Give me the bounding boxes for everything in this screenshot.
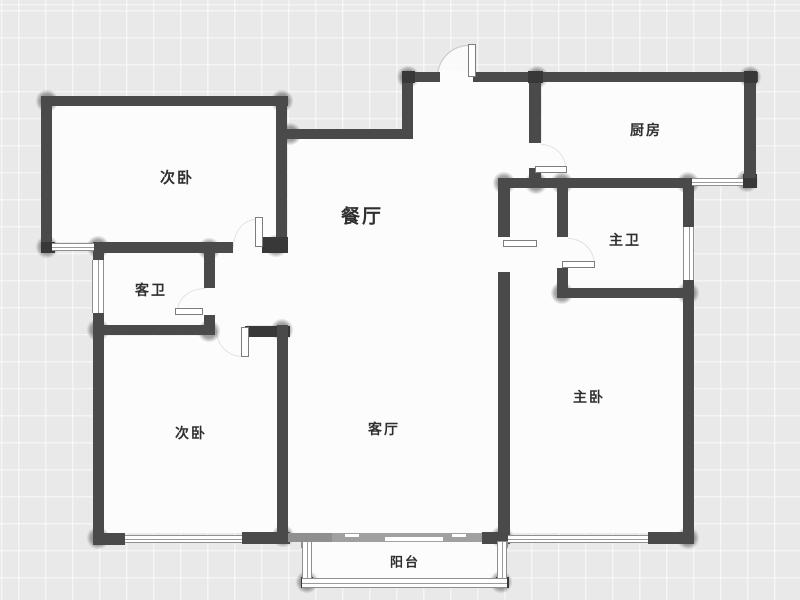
wall-segment — [498, 178, 510, 237]
wall-segment — [498, 272, 510, 533]
wall-segment — [276, 96, 287, 252]
guest-bath-door-leaf — [175, 308, 203, 315]
sliding-door-panel-gap — [385, 537, 443, 541]
wall-segment — [285, 129, 413, 139]
floor-area — [215, 253, 288, 325]
window-center-line — [98, 260, 99, 313]
floor-area — [413, 82, 530, 178]
wall-segment — [528, 71, 543, 83]
window-center-line — [307, 542, 308, 578]
entry-door-leaf — [468, 44, 476, 77]
wall-segment — [41, 96, 52, 253]
window-marker — [692, 178, 743, 186]
window-marker — [125, 535, 242, 543]
entry-door-arc — [437, 45, 469, 77]
window-marker — [683, 227, 694, 280]
sliding-door-panel-gap — [452, 534, 466, 537]
wall-segment — [262, 237, 288, 253]
room-label-guest-bath: 客卫 — [135, 280, 167, 300]
wall-segment — [529, 78, 541, 143]
floor-area — [510, 298, 683, 533]
wall-segment — [204, 245, 215, 288]
window-center-line — [689, 227, 690, 280]
room-label-master-bath: 主卫 — [609, 230, 641, 250]
wall-segment — [744, 71, 757, 83]
wall-segment — [41, 96, 288, 106]
wall-segment — [557, 288, 694, 298]
wall-segment — [473, 72, 758, 82]
sliding-door-panel-gap — [345, 534, 359, 537]
window-marker — [497, 542, 507, 578]
room-label-bedroom-bottom: 次卧 — [175, 423, 207, 443]
window-marker — [508, 535, 648, 543]
room-label-balcony: 阳台 — [390, 552, 420, 571]
window-center-line — [52, 247, 94, 248]
room-label-master-bedroom: 主卧 — [573, 387, 605, 407]
wall-segment — [93, 325, 215, 335]
wall-segment — [277, 325, 288, 539]
window-marker — [92, 260, 104, 313]
window-center-line — [302, 583, 507, 584]
bedroom-bottom-door-leaf — [241, 327, 249, 357]
window-center-line — [125, 539, 242, 540]
floor-plan-canvas: 次卧餐厅厨房主卫客卫次卧客厅主卧阳台 — [0, 0, 800, 600]
window-marker — [302, 542, 312, 578]
master-bath-door-leaf — [562, 261, 595, 268]
floor-area — [288, 139, 498, 533]
floor-area — [204, 286, 215, 316]
dining-pocket-door-leaf — [503, 240, 537, 247]
room-label-living: 客厅 — [368, 419, 400, 439]
window-marker — [52, 243, 94, 251]
window-center-line — [692, 182, 743, 183]
wall-segment — [93, 533, 125, 545]
wall-segment — [204, 315, 215, 329]
wall-segment — [402, 71, 415, 83]
kitchen-door-leaf — [535, 166, 567, 173]
room-label-dining: 餐厅 — [341, 202, 383, 229]
wall-segment — [93, 313, 104, 545]
bedroom-top-door-leaf — [255, 217, 263, 247]
wall-segment — [683, 280, 694, 544]
wall-segment — [288, 533, 337, 542]
window-center-line — [502, 542, 503, 578]
window-center-line — [508, 539, 648, 540]
room-label-kitchen: 厨房 — [630, 120, 662, 140]
room-label-bedroom-top: 次卧 — [160, 167, 194, 188]
window-marker — [302, 578, 507, 588]
wall-segment — [498, 178, 694, 188]
wall-segment — [557, 187, 568, 237]
wall-segment — [744, 72, 756, 178]
wall-segment — [242, 532, 290, 544]
